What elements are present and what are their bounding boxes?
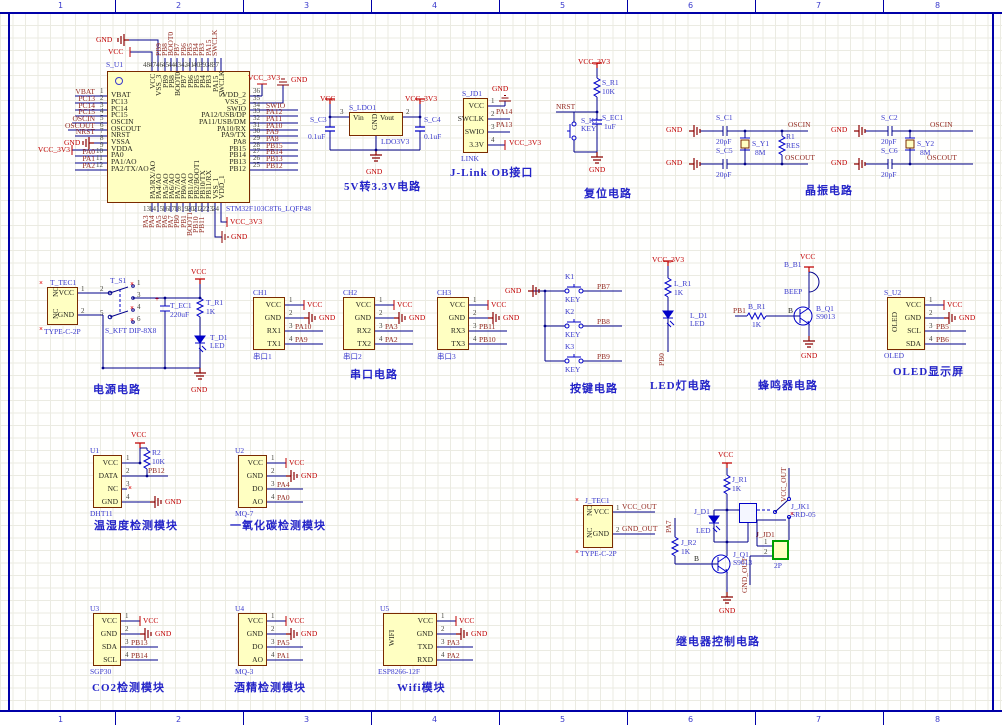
label-pin: PA2/TX/AO — [111, 165, 149, 173]
label-num: 47 — [149, 62, 156, 69]
label-net: NRST — [556, 103, 575, 111]
label-net: PA10 — [295, 323, 311, 331]
label-num: 24 — [212, 206, 219, 213]
caption-power: 电源电路 — [93, 385, 141, 396]
label-pin: VCC — [102, 617, 117, 625]
label-num: 4 — [491, 137, 495, 144]
label-des: S_Y2 — [917, 140, 934, 148]
label-net: GND_OUT — [622, 525, 657, 533]
label-pwr: GND — [505, 287, 521, 295]
label-pwr: VCC — [320, 95, 335, 103]
label-num: 4 — [126, 494, 130, 501]
ruler-tick — [115, 0, 116, 12]
label-xm: × — [128, 485, 132, 492]
label-des: J_D1 — [694, 508, 710, 516]
label-des: SGP30 — [90, 668, 111, 676]
label-net: PA2 — [82, 162, 95, 170]
label-num: 3 — [379, 323, 383, 330]
label-num: 2 — [100, 286, 104, 293]
label-pwr: VCC — [108, 48, 123, 56]
label-des: BEEP — [784, 288, 802, 296]
label-pwr: GND — [231, 233, 247, 241]
label-pin: GND — [905, 314, 921, 322]
label-des: K3 — [565, 343, 574, 351]
label-net: OSCOUT — [785, 154, 815, 162]
label-num: 14 — [149, 206, 156, 213]
labels-layer: S_U1STM32F103C8T6_LQFP48VBATPC13PC14PC15… — [0, 0, 1002, 725]
label-pwr: GND — [301, 630, 317, 638]
label-xm: × — [790, 511, 794, 518]
label-des: 8M — [755, 149, 765, 157]
label-pwr: GND — [492, 85, 508, 93]
ruler-column-number: 6 — [688, 1, 693, 10]
label-des: 0.1uF — [424, 133, 441, 141]
oled-designator: S_U2 — [884, 289, 901, 297]
caption-led: LED灯电路 — [650, 381, 712, 392]
caption-keys: 按键电路 — [570, 384, 618, 395]
label-des: TYPE-C-2P — [44, 328, 81, 336]
label-pin: NC — [108, 485, 118, 493]
label-pin: NC — [586, 528, 594, 538]
caption-sgp30: CO2检测模块 — [92, 683, 165, 694]
mq7-designator: U2 — [235, 447, 244, 455]
label-pwr: VCC_3V3 — [509, 139, 541, 147]
label-num: 1 — [491, 98, 495, 105]
label-des: LINK — [461, 155, 479, 163]
label-des: 串口3 — [437, 353, 456, 361]
label-des: LED — [210, 342, 225, 350]
label-net: PB10 — [479, 336, 496, 344]
label-pwr: VCC — [397, 301, 412, 309]
label-des: 10K — [602, 88, 615, 96]
label-pin: GND — [449, 314, 465, 322]
label-pin: VCC — [248, 617, 263, 625]
caption-wifi: Wifi模块 — [397, 683, 446, 694]
label-des: 1K — [674, 289, 683, 297]
label-pwr: VCC_3V3 — [652, 256, 684, 264]
label-num: 2 — [929, 310, 933, 317]
label-des: 串口2 — [343, 353, 362, 361]
label-xm: + — [155, 296, 159, 303]
label-num: 2 — [271, 468, 275, 475]
ruler-column-number: 7 — [816, 1, 821, 10]
wifi-designator: U5 — [380, 605, 389, 613]
label-pwr: GND — [666, 159, 682, 167]
label-xm: × — [39, 280, 43, 287]
ruler-column-number: 1 — [58, 1, 63, 10]
label-des: KEY — [565, 296, 580, 304]
label-des: S_C1 — [716, 114, 733, 122]
label-pin: SDA — [906, 340, 921, 348]
sheet-ruler-top: 12345678 — [0, 0, 1002, 14]
label-num: 6 — [137, 316, 141, 323]
label-pin: TX1 — [267, 340, 281, 348]
ruler-column-number: 1 — [58, 715, 63, 724]
label-pin: GND — [58, 311, 74, 319]
label-des: 20pF — [881, 171, 896, 179]
ruler-column-number: 8 — [935, 715, 940, 724]
label-pin: GND — [593, 530, 609, 538]
label-net: PA4 — [277, 481, 290, 489]
label-pin: NC — [52, 287, 60, 297]
label-pwr: GND — [589, 166, 605, 174]
label-num: 39 — [199, 62, 206, 69]
label-pwr: VCC_3V3 — [405, 95, 437, 103]
ruler-column-number: 2 — [176, 1, 181, 10]
label-net: PA14 — [496, 108, 512, 116]
label-pin: VCC — [266, 301, 281, 309]
label-num: 2 — [616, 527, 620, 534]
label-pwr: VCC — [800, 253, 815, 261]
label-pwr: GND — [801, 352, 817, 360]
label-des: J_R1 — [732, 476, 747, 484]
label-pin: VCC — [450, 301, 465, 309]
label-pin: GND — [417, 630, 433, 638]
label-num: 4 — [271, 494, 275, 501]
jlink-designator: S_JD1 — [462, 90, 482, 98]
label-pwr: GND — [719, 607, 735, 615]
sheet-border-right — [992, 12, 994, 710]
label-num: 37 — [212, 62, 219, 69]
ruler-tick — [371, 712, 372, 725]
label-net: PB0 — [658, 353, 666, 366]
label-net: PB11 — [479, 323, 495, 331]
label-num: 25 — [253, 162, 260, 169]
label-net: PB12 — [266, 162, 283, 170]
label-net: PA2 — [447, 652, 460, 660]
label-des: S_C6 — [881, 147, 898, 155]
label-pwr: GND — [301, 472, 317, 480]
serial1-designator: CH1 — [253, 289, 267, 297]
label-net: OSCOUT — [927, 154, 957, 162]
label-des: 220uF — [170, 311, 189, 319]
caption-ldo: 5V转3.3V电路 — [344, 182, 421, 193]
label-pwr: GND — [831, 126, 847, 134]
label-pin: RX1 — [267, 327, 281, 335]
label-pin: SWCLK — [218, 71, 226, 97]
label-des: S9013 — [816, 313, 835, 321]
label-pwr: GND — [319, 314, 335, 322]
label-net: SWCLK — [211, 30, 219, 56]
label-net: VCC_OUT — [780, 467, 788, 502]
label-des: 串口1 — [253, 353, 272, 361]
label-pin: B — [694, 555, 699, 563]
ruler-tick — [883, 0, 884, 12]
power-connector-designator: T_TEC1 — [50, 279, 76, 287]
label-des: R2 — [152, 449, 161, 457]
caption-relay: 继电器控制电路 — [676, 637, 760, 648]
label-des: L_R1 — [674, 280, 691, 288]
label-pin: DO — [252, 643, 263, 651]
label-num: 3 — [137, 292, 141, 299]
label-pin: SWCLK — [458, 115, 484, 123]
label-pwr: VCC — [289, 617, 304, 625]
label-des: LED — [696, 527, 711, 535]
mcu-part-number: STM32F103C8T6_LQFP48 — [226, 205, 311, 213]
label-num: 4 — [271, 652, 275, 659]
label-des: 0.1uF — [308, 133, 325, 141]
label-pwr: VCC — [947, 301, 962, 309]
label-pwr: GND — [666, 126, 682, 134]
label-pwr: GND — [96, 36, 112, 44]
label-num: 4 — [929, 336, 933, 343]
label-num: 2 — [491, 111, 495, 118]
label-num: 3 — [271, 639, 275, 646]
label-pwr: GND — [366, 168, 382, 176]
label-des: T_EC1 — [170, 302, 192, 310]
serial2-designator: CH2 — [343, 289, 357, 297]
label-pin: PB12 — [229, 165, 246, 173]
label-num: 2 — [406, 109, 410, 116]
label-num: 3 — [929, 323, 933, 330]
label-pin: B — [788, 307, 793, 315]
label-pin: AO — [252, 656, 263, 664]
caption-crystal: 晶振电路 — [805, 186, 853, 197]
label-des: K2 — [565, 308, 574, 316]
label-pin: GND — [265, 314, 281, 322]
label-des: S_Y1 — [752, 140, 769, 148]
label-pwr: VCC_3V3 — [578, 58, 610, 66]
caption-jlink: J-Link OB接口 — [450, 168, 533, 179]
caption-dht11: 温湿度检测模块 — [94, 521, 178, 532]
label-num: 12 — [96, 162, 103, 169]
label-pin: Vin — [353, 114, 364, 122]
label-des: S_C3 — [310, 116, 327, 124]
ruler-column-number: 3 — [304, 715, 309, 724]
label-pin: GND — [355, 314, 371, 322]
label-xm: × — [130, 305, 134, 312]
label-des: K1 — [565, 273, 574, 281]
label-net: NRST — [76, 128, 95, 136]
label-xm: × — [130, 281, 134, 288]
label-net: OSCIN — [930, 121, 953, 129]
caption-serial: 串口电路 — [350, 370, 398, 381]
label-num: 2 — [81, 308, 85, 315]
label-net: PB14 — [131, 652, 148, 660]
label-des: SRD-05 — [791, 511, 816, 519]
ruler-tick — [755, 712, 756, 725]
label-num: 1 — [271, 613, 275, 620]
ruler-column-number: 3 — [304, 1, 309, 10]
relay-connector-designator: J_TEC1 — [585, 497, 610, 505]
label-num: 2 — [126, 468, 130, 475]
label-net: PA0 — [277, 494, 290, 502]
caption-oled: OLED显示屏 — [893, 367, 964, 378]
label-num: 1 — [441, 613, 445, 620]
label-num: 1 — [929, 297, 933, 304]
label-pin: RX3 — [451, 327, 465, 335]
label-pin: NC — [586, 506, 594, 516]
label-pin: DO — [252, 485, 263, 493]
label-des: 1K — [206, 308, 215, 316]
label-num: 1 — [473, 297, 477, 304]
label-pwr: VCC — [191, 268, 206, 276]
label-pin: VCC — [248, 459, 263, 467]
label-pin: Vout — [380, 114, 394, 122]
ruler-column-number: 2 — [176, 715, 181, 724]
label-pwr: VCC — [459, 617, 474, 625]
label-pwr: GND — [191, 386, 207, 394]
label-net: PA1 — [277, 652, 290, 660]
label-net: PB11 — [198, 217, 206, 233]
label-des: T_S1 — [110, 277, 126, 285]
label-net: PA5 — [277, 639, 290, 647]
label-pin: RX2 — [357, 327, 371, 335]
label-pwr: GND — [155, 630, 171, 638]
label-net: VCC_OUT — [622, 503, 657, 511]
label-pin: OLED — [891, 312, 899, 332]
label-des: S_C5 — [716, 147, 733, 155]
caption-buzzer: 蜂鸣器电路 — [758, 381, 818, 392]
label-pin: GND — [247, 630, 263, 638]
label-pwr: VCC — [307, 301, 322, 309]
label-des: S_KFT DIP-8X8 — [105, 327, 156, 335]
label-pin: TX3 — [451, 340, 465, 348]
label-des: MQ-3 — [235, 668, 253, 676]
label-pin: WIFI — [388, 630, 396, 646]
ruler-column-number: 8 — [935, 1, 940, 10]
label-net: PB5 — [936, 323, 949, 331]
label-num: 3 — [289, 323, 293, 330]
ruler-tick — [883, 712, 884, 725]
label-des: 20pF — [716, 138, 731, 146]
label-pin: GND — [247, 472, 263, 480]
label-pwr: GND — [471, 630, 487, 638]
label-pwr: VCC — [131, 431, 146, 439]
label-pwr: VCC — [718, 451, 733, 459]
serial3-designator: CH3 — [437, 289, 451, 297]
label-des: J_R2 — [681, 539, 696, 547]
label-num: 2 — [379, 310, 383, 317]
label-num: 1 — [379, 297, 383, 304]
label-num: 4 — [379, 336, 383, 343]
mq3-designator: U4 — [235, 605, 244, 613]
label-des: ESP8266-12F — [378, 668, 420, 676]
label-pin: SCL — [907, 327, 921, 335]
caption-mq3: 酒精检测模块 — [234, 683, 306, 694]
label-pwr: GND — [831, 159, 847, 167]
label-net: PA3 — [385, 323, 398, 331]
label-num: 2 — [473, 310, 477, 317]
ruler-column-number: 4 — [432, 1, 437, 10]
sheet-ruler-bottom: 12345678 — [0, 710, 1002, 725]
label-num: 4 — [289, 336, 293, 343]
label-pin: TXD — [418, 643, 433, 651]
label-net: PA9 — [295, 336, 308, 344]
label-des: 10K — [152, 458, 165, 466]
label-pwr: GND — [165, 498, 181, 506]
label-num: 3 — [473, 323, 477, 330]
ruler-tick — [243, 0, 244, 12]
label-pin: AO — [252, 498, 263, 506]
label-num: 1 — [126, 455, 130, 462]
label-num: 1 — [81, 286, 85, 293]
label-des: 1K — [752, 321, 761, 329]
label-des: TYPE-C-2P — [580, 550, 617, 558]
label-des: S_C4 — [424, 116, 441, 124]
label-num: 22 — [199, 206, 206, 213]
label-net: PA7 — [665, 520, 673, 533]
label-pin: VCC — [418, 617, 433, 625]
label-net: PA2 — [385, 336, 398, 344]
label-pin: 3.3V — [469, 141, 484, 149]
label-pin: GND — [102, 498, 118, 506]
label-des: 20pF — [716, 171, 731, 179]
label-des: RES — [786, 142, 800, 150]
label-pin: VCC — [594, 508, 609, 516]
label-pin: VDD_1 — [218, 175, 226, 199]
label-pwr: VCC — [491, 301, 506, 309]
label-des: S_C2 — [881, 114, 898, 122]
ruler-column-number: 5 — [560, 1, 565, 10]
label-pwr: VCC — [143, 617, 158, 625]
ruler-column-number: 6 — [688, 715, 693, 724]
ruler-tick — [627, 712, 628, 725]
ruler-column-number: 5 — [560, 715, 565, 724]
label-net: PB9 — [597, 353, 610, 361]
label-net: PB8 — [597, 318, 610, 326]
label-des: MQ-7 — [235, 510, 253, 518]
label-des: S_EC1 — [602, 114, 623, 122]
label-des: DHT11 — [90, 510, 113, 518]
label-des: 1uF — [604, 123, 616, 131]
label-pin: VCC — [906, 301, 921, 309]
label-num: 18 — [174, 206, 181, 213]
label-pin: GND — [101, 630, 117, 638]
label-num: 1 — [289, 297, 293, 304]
label-num: 3 — [340, 109, 344, 116]
label-num: 1 — [137, 280, 141, 287]
label-xm: × — [575, 497, 579, 504]
label-des: 2P — [774, 562, 782, 570]
label-num: 5 — [100, 310, 104, 317]
label-des: 20pF — [881, 138, 896, 146]
label-des: R1 — [786, 133, 795, 141]
label-pin: SCL — [103, 656, 117, 664]
label-des: S9013 — [733, 559, 752, 567]
label-des: KEY — [565, 366, 580, 374]
label-pin: NC — [52, 309, 60, 319]
schematic-canvas[interactable]: S_U1STM32F103C8T6_LQFP48VBATPC13PC14PC15… — [0, 0, 1002, 725]
label-des: 1K — [681, 548, 690, 556]
label-net: OSCIN — [788, 121, 811, 129]
label-net: PB12 — [148, 467, 165, 475]
label-num: 4 — [125, 652, 129, 659]
dht11-designator: U1 — [90, 447, 99, 455]
label-des: 1K — [732, 485, 741, 493]
caption-reset: 复位电路 — [584, 189, 632, 200]
label-pwr: VCC_3V3 — [38, 146, 70, 154]
label-pin: SDA — [102, 643, 117, 651]
label-num: 1 — [271, 455, 275, 462]
caption-mq7: 一氧化碳检测模块 — [230, 521, 326, 532]
label-num: 43 — [174, 62, 181, 69]
ruler-column-number: 7 — [816, 715, 821, 724]
ruler-tick — [755, 0, 756, 12]
label-num: 4 — [441, 652, 445, 659]
label-num: 3 — [125, 639, 129, 646]
label-des: B_B1 — [784, 261, 802, 269]
label-des: S_R1 — [602, 79, 619, 87]
label-num: 3 — [491, 124, 495, 131]
label-pwr: VCC_3V3 — [230, 218, 262, 226]
label-xm: × — [130, 317, 134, 324]
label-num: 1 — [125, 613, 129, 620]
label-net: PB6 — [936, 336, 949, 344]
label-des: KEY — [581, 125, 596, 133]
ldo-designator: S_LDO1 — [349, 104, 376, 112]
label-net: PB1 — [733, 307, 746, 315]
